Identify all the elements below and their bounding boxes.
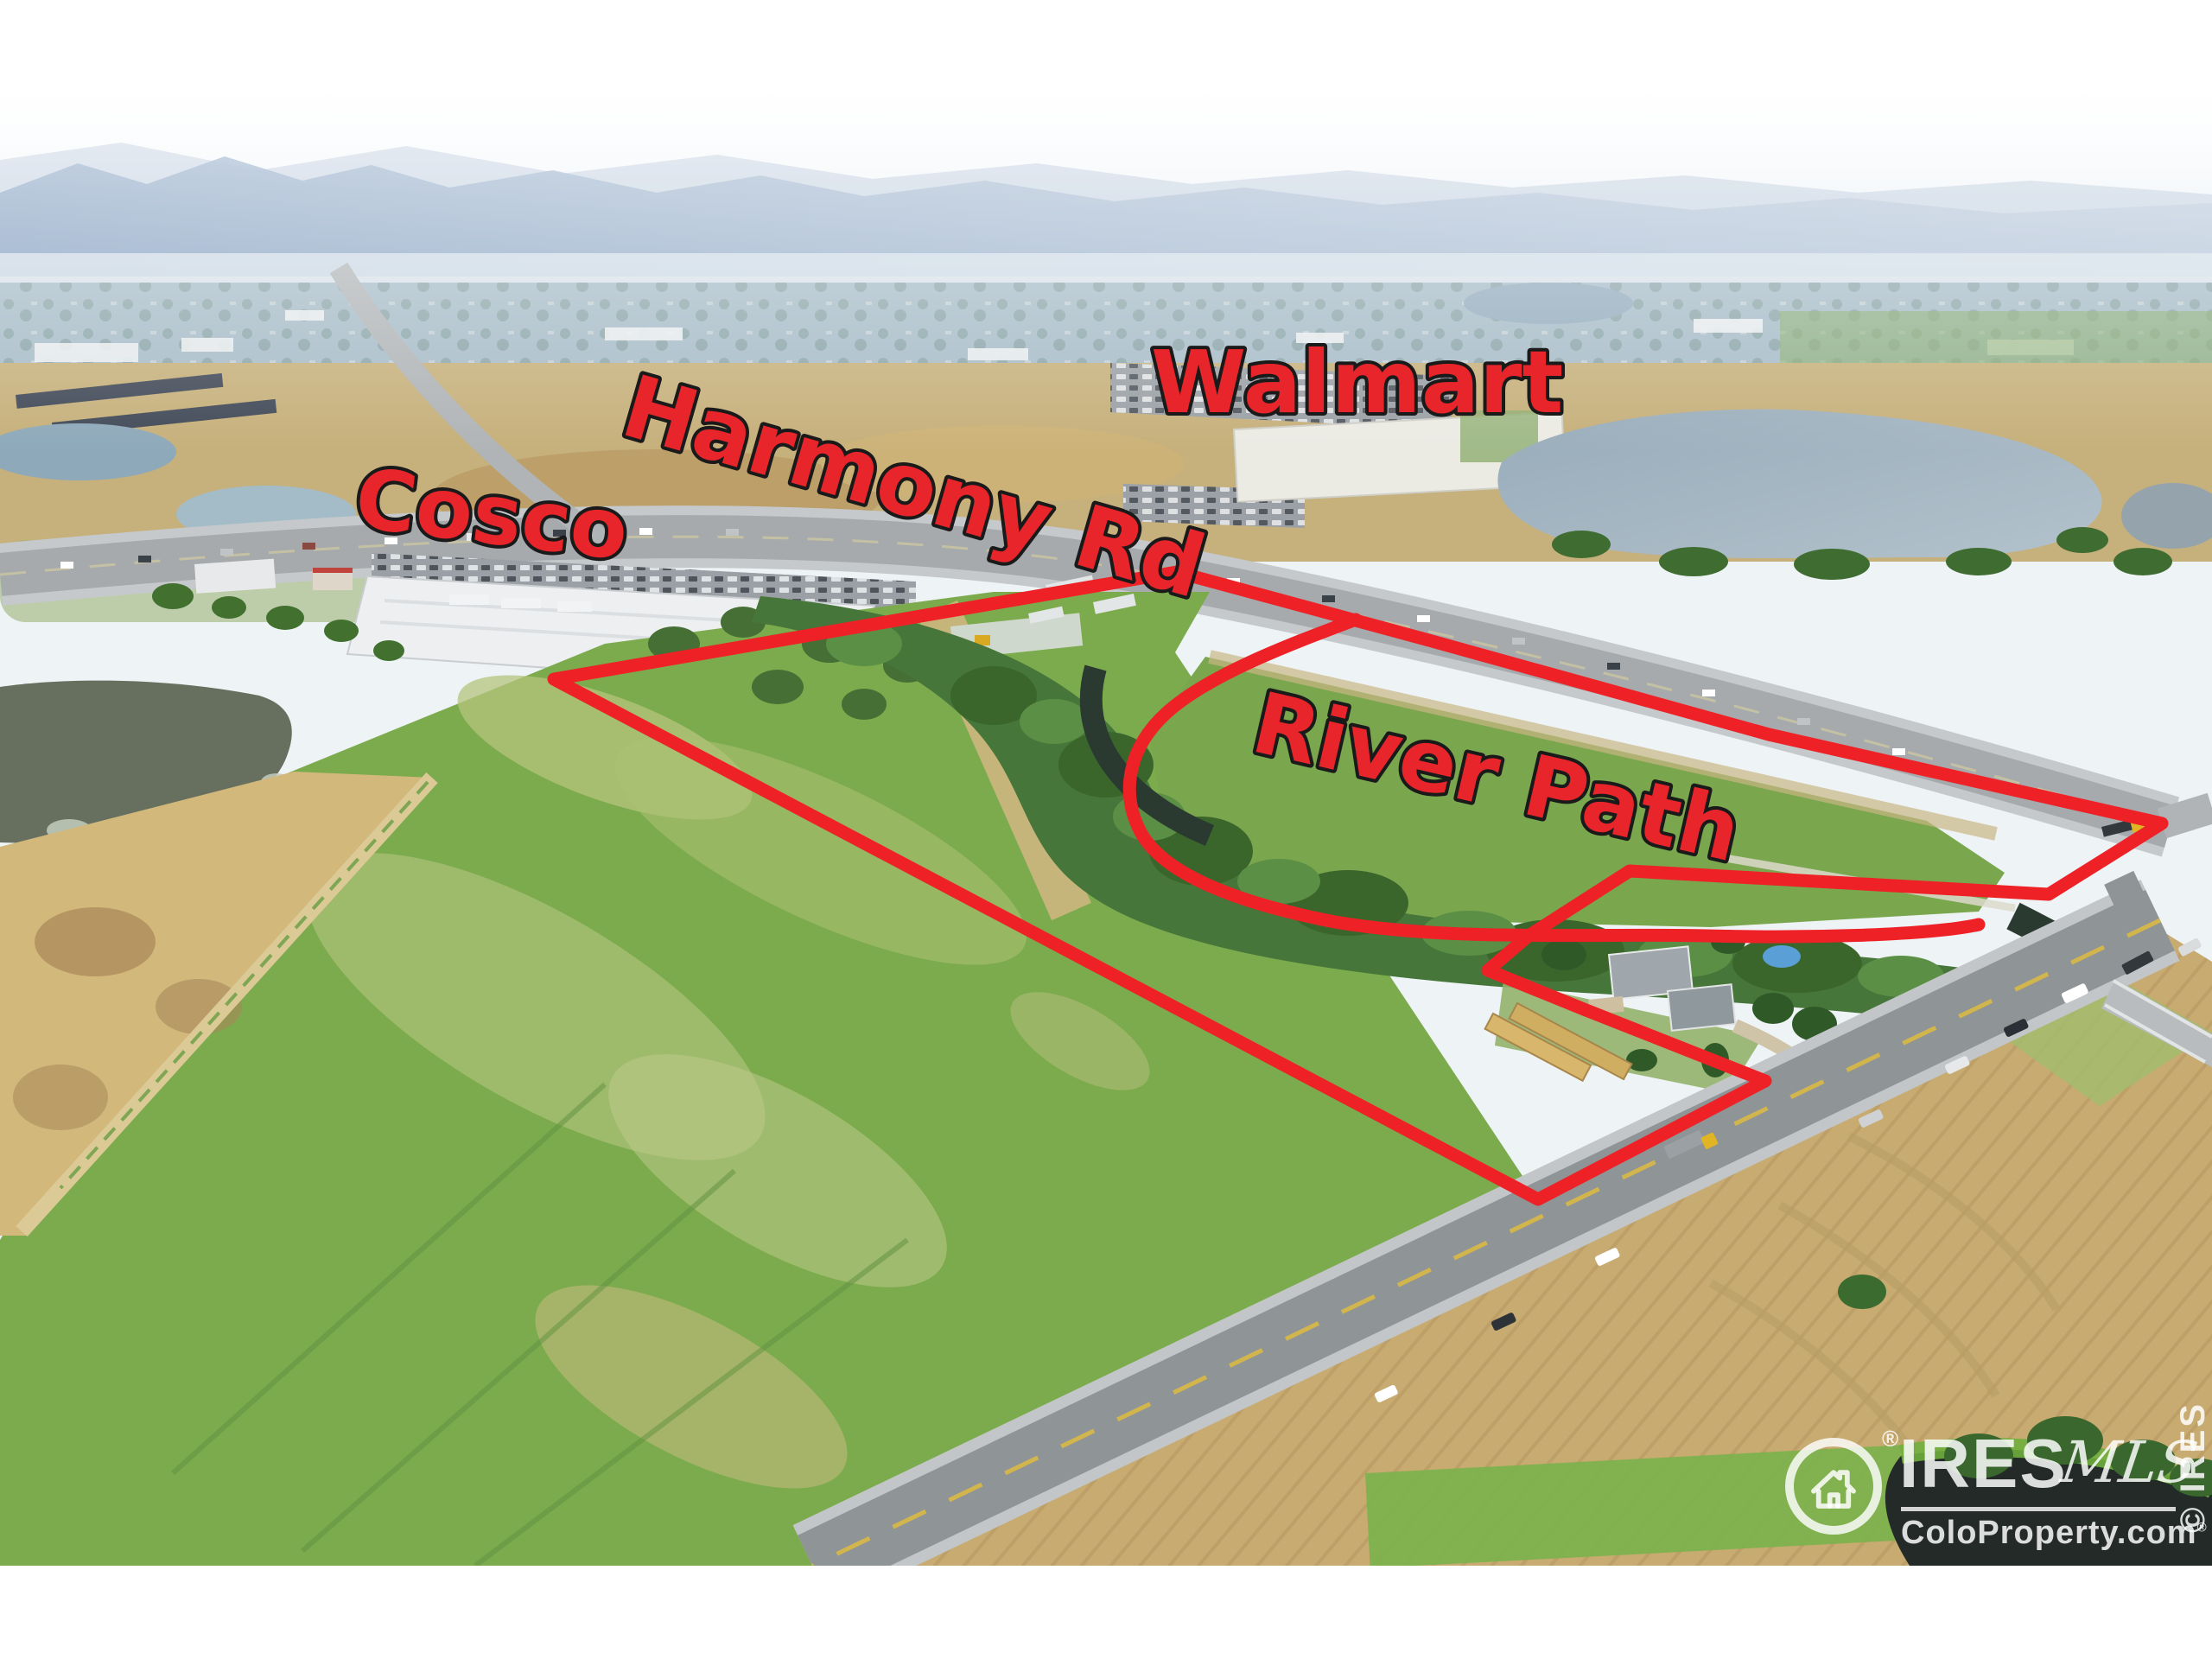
label-costco: Cosco — [350, 450, 633, 580]
annotation-overlay: Cosco Harmony Rd Walmart River Path — [0, 91, 2212, 1566]
copyright-vertical-text: © IRES — [2174, 1402, 2212, 1533]
property-boundary-line — [554, 572, 2162, 1199]
label-walmart: Walmart — [1151, 332, 1563, 433]
aerial-photo: Cosco Harmony Rd Walmart River Path ® IR… — [0, 91, 2212, 1566]
real-estate-listing-photo: Cosco Harmony Rd Walmart River Path ® IR… — [0, 0, 2212, 1659]
coloproperty-text: ColoProperty.com® — [1901, 1515, 2208, 1552]
registered-mark: ® — [1882, 1426, 1898, 1452]
label-harmony-rd: Harmony Rd — [612, 356, 1216, 619]
ires-watermark: ® IRES MLS ColoProperty.com® © IRES — [1773, 1426, 2205, 1555]
ires-brand-text: IRES — [1899, 1429, 2068, 1498]
house-logo-icon — [1785, 1438, 1882, 1535]
watermark-divider — [1901, 1507, 2176, 1511]
